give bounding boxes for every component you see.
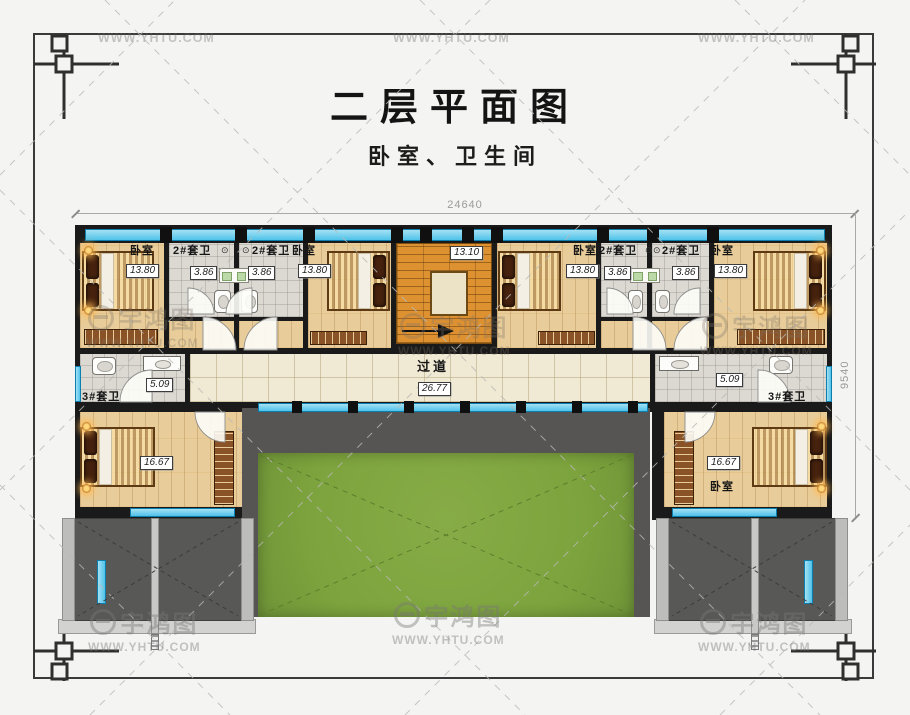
bedside-lamp-icon bbox=[84, 246, 93, 255]
watermark-brand: 宇鸿图 bbox=[732, 308, 810, 343]
wardrobe bbox=[214, 431, 234, 505]
room-label-bedroom-bottom-right: 卧室 bbox=[710, 478, 734, 494]
area-badge-bedroom-mid-right: 13.80 bbox=[566, 264, 599, 278]
area-badge-bedroom-mid-left: 13.80 bbox=[298, 264, 331, 278]
watermark-brand: 宇鸿图 bbox=[730, 604, 808, 639]
garage-left-window bbox=[97, 560, 106, 604]
bedside-lamp-icon bbox=[82, 422, 91, 431]
garage-left-column bbox=[241, 518, 254, 621]
ceiling-lamp-icon: ⊙ bbox=[645, 246, 653, 255]
watermark-logo-icon bbox=[400, 313, 426, 339]
wall-pier bbox=[597, 227, 609, 243]
garage-left-column bbox=[62, 518, 75, 621]
twin-basin bbox=[630, 268, 660, 283]
toilet bbox=[628, 290, 643, 313]
wall-pier bbox=[628, 401, 638, 413]
watermark-logo-icon bbox=[700, 609, 726, 635]
bedside-lamp-icon bbox=[816, 246, 825, 255]
watermark-site-text: WWW.YHTU.COM bbox=[700, 344, 813, 358]
suite-bath-3-vestibule bbox=[601, 321, 647, 348]
sink-counter bbox=[143, 356, 181, 371]
garage-right-column bbox=[656, 518, 669, 621]
watermark-unit: 宇鸿图 WWW.YHTU.COM bbox=[88, 604, 201, 654]
ceiling-lamp-icon: ⊙ bbox=[242, 246, 250, 255]
wall-pier bbox=[420, 227, 432, 243]
bed bbox=[752, 427, 827, 487]
wall-pier bbox=[160, 227, 172, 243]
wardrobe bbox=[674, 431, 694, 505]
twin-basin bbox=[219, 268, 249, 283]
wall-pier bbox=[303, 227, 315, 243]
watermark-unit: 宇鸿图 WWW.YHTU.COM bbox=[700, 308, 813, 358]
suite-bath-2-vestibule bbox=[239, 321, 303, 348]
watermark-unit: 宇鸿图 WWW.YHTU.COM bbox=[392, 597, 505, 647]
right-wing-south-window bbox=[672, 508, 777, 517]
wall-pier bbox=[391, 227, 403, 243]
watermark-site-text: WWW.YHTU.COM bbox=[698, 640, 811, 654]
wall-pier bbox=[292, 401, 302, 413]
area-badge-corridor: 26.77 bbox=[418, 382, 451, 396]
wardrobe bbox=[310, 331, 367, 345]
wall-pier bbox=[516, 401, 526, 413]
east-window bbox=[826, 366, 832, 402]
watermark-logo-icon bbox=[394, 602, 420, 628]
left-wing-south-window bbox=[130, 508, 235, 517]
toilet bbox=[214, 290, 231, 313]
room-label-bedroom-top-left: 卧室 bbox=[130, 242, 154, 258]
toilet bbox=[92, 357, 116, 375]
room-label-corridor: 过道 bbox=[417, 356, 449, 375]
wall-pier bbox=[647, 227, 659, 243]
wall-pier bbox=[462, 227, 474, 243]
watermark-brand: 宇鸿图 bbox=[424, 597, 502, 632]
wall-pier bbox=[707, 227, 719, 243]
toilet bbox=[241, 290, 258, 313]
watermark-brand: 宇鸿图 bbox=[120, 604, 198, 639]
watermark-brand: 宇鸿图 bbox=[430, 308, 508, 343]
page-subtitle: 卧室、卫生间 bbox=[0, 139, 910, 171]
wall-pier bbox=[460, 401, 470, 413]
toilet bbox=[655, 290, 670, 313]
area-badge-bedroom-bottom-right: 16.67 bbox=[707, 456, 740, 470]
watermark-logo-icon bbox=[702, 313, 728, 339]
wardrobe bbox=[538, 331, 595, 345]
area-badge-suite-bath-1: 3.86 bbox=[190, 266, 217, 280]
bed bbox=[498, 251, 561, 311]
terrace-roof-top bbox=[242, 408, 650, 455]
bedside-lamp-icon bbox=[817, 484, 826, 493]
area-badge-suite-bath-2: 3.86 bbox=[248, 266, 275, 280]
toilet bbox=[769, 356, 793, 374]
terrace-roof-right bbox=[634, 455, 650, 617]
dimension-width-label: 24640 bbox=[415, 199, 515, 211]
room-label-bedroom-mid-left: 卧室 bbox=[292, 242, 316, 258]
watermark-site-text: WWW.YHTU.COM bbox=[393, 31, 510, 45]
bed bbox=[753, 251, 826, 311]
bedside-lamp-icon bbox=[816, 306, 825, 315]
bedside-lamp-icon bbox=[82, 484, 91, 493]
wall-pier bbox=[491, 227, 503, 243]
floor-plan-canvas: 二层平面图 卧室、卫生间 24640 9540 bbox=[0, 0, 910, 715]
watermark-logo-icon bbox=[88, 305, 114, 331]
room-label-suite-bath-3: 2#套卫 bbox=[599, 242, 637, 258]
dimension-depth-label: 9540 bbox=[839, 330, 851, 420]
room-label-suite-bath-2: 2#套卫 bbox=[252, 242, 290, 258]
wall-pier bbox=[572, 401, 582, 413]
room-label-suite-bath-right: 3#套卫 bbox=[768, 388, 806, 404]
dimension-line-right bbox=[855, 213, 856, 518]
area-badge-suite-bath-left: 5.09 bbox=[146, 378, 173, 392]
area-badge-suite-bath-3: 3.86 bbox=[604, 266, 631, 280]
bed bbox=[327, 251, 390, 311]
watermark-site-text: WWW.YHTU.COM bbox=[98, 31, 215, 45]
room-label-suite-bath-1: 2#套卫 bbox=[173, 242, 211, 258]
corridor-south-window-band bbox=[258, 403, 648, 412]
watermark-logo-icon bbox=[90, 609, 116, 635]
wall-pier bbox=[348, 401, 358, 413]
garage-right-column bbox=[835, 518, 848, 621]
area-badge-bedroom-top-left: 13.80 bbox=[126, 264, 159, 278]
room-label-bedroom-top-right: 卧室 bbox=[710, 242, 734, 258]
sink-counter bbox=[659, 356, 699, 371]
wall-pier bbox=[404, 401, 414, 413]
watermark-site-text: WWW.YHTU.COM bbox=[392, 633, 505, 647]
area-badge-suite-bath-right: 5.09 bbox=[716, 373, 743, 387]
watermark-site-text: WWW.YHTU.COM bbox=[698, 31, 815, 45]
page-title: 二层平面图 bbox=[0, 76, 910, 131]
watermark-unit: 宇鸿图 WWW.YHTU.COM bbox=[398, 308, 511, 358]
room-label-suite-bath-4: 2#套卫 bbox=[662, 242, 700, 258]
ceiling-lamp-icon: ⊙ bbox=[653, 246, 661, 255]
room-label-suite-bath-left: 3#套卫 bbox=[82, 388, 120, 404]
dimension-line-top bbox=[75, 213, 855, 214]
area-badge-bedroom-top-right: 13.80 bbox=[714, 264, 747, 278]
area-badge-staircase: 13.10 bbox=[450, 246, 483, 260]
ceiling-lamp-icon: ⊙ bbox=[221, 246, 229, 255]
garage-right-window bbox=[804, 560, 813, 604]
watermark-unit: 宇鸿图 WWW.YHTU.COM bbox=[698, 604, 811, 654]
watermark-site-text: WWW.YHTU.COM bbox=[88, 640, 201, 654]
watermark-site-text: WWW.YHTU.COM bbox=[86, 336, 199, 350]
watermark-brand: 宇鸿图 bbox=[118, 300, 196, 335]
watermark-unit: 宇鸿图 WWW.YHTU.COM bbox=[86, 300, 199, 350]
area-badge-suite-bath-4: 3.86 bbox=[672, 266, 699, 280]
west-window bbox=[75, 366, 81, 402]
watermark-site-text: WWW.YHTU.COM bbox=[398, 344, 511, 358]
courtyard-lawn bbox=[258, 453, 634, 617]
wall-pier bbox=[235, 227, 247, 243]
room-label-bedroom-mid-right: 卧室 bbox=[573, 242, 597, 258]
area-badge-bedroom-bottom-left: 16.67 bbox=[140, 456, 173, 470]
bedside-lamp-icon bbox=[817, 422, 826, 431]
